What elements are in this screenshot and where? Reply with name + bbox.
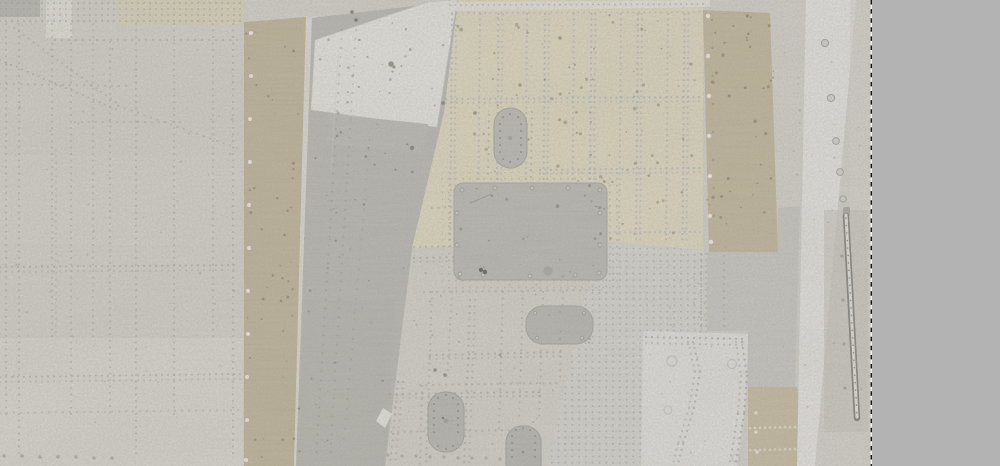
pasteboard (872, 0, 1000, 466)
texture-image (0, 0, 1000, 466)
editor-overlays (872, 0, 1000, 466)
texture-stage (0, 0, 1000, 466)
grain-overlay (0, 0, 872, 466)
